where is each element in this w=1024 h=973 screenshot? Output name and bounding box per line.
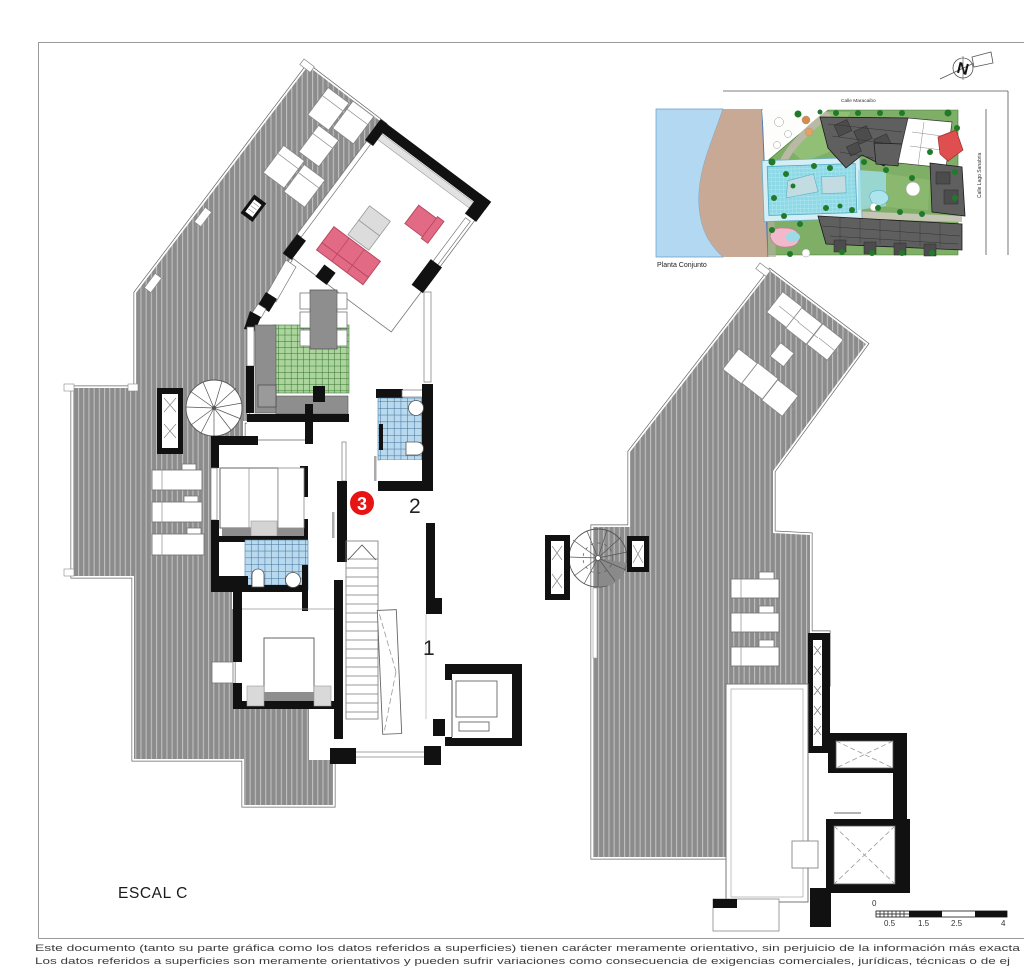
svg-text:Calle Lago Sanabria: Calle Lago Sanabria [977,152,983,198]
svg-text:4: 4 [1001,919,1006,928]
svg-text:3: 3 [357,494,367,514]
svg-text:ESCAL C: ESCAL C [118,885,188,902]
svg-text:2: 2 [409,495,421,518]
svg-text:Calle Maracaibo: Calle Maracaibo [841,98,876,104]
svg-text:Este documento (tanto su parte: Este documento (tanto su parte gráfica c… [35,943,1021,954]
svg-text:1: 1 [423,637,435,660]
svg-text:0.5: 0.5 [884,919,896,928]
svg-text:2.5: 2.5 [951,919,963,928]
svg-text:1.5: 1.5 [918,919,930,928]
svg-text:0: 0 [872,899,877,908]
svg-text:Los datos referidos a superfic: Los datos referidos a superficies son me… [35,956,1010,967]
svg-text:Planta Conjunto: Planta Conjunto [657,262,707,269]
